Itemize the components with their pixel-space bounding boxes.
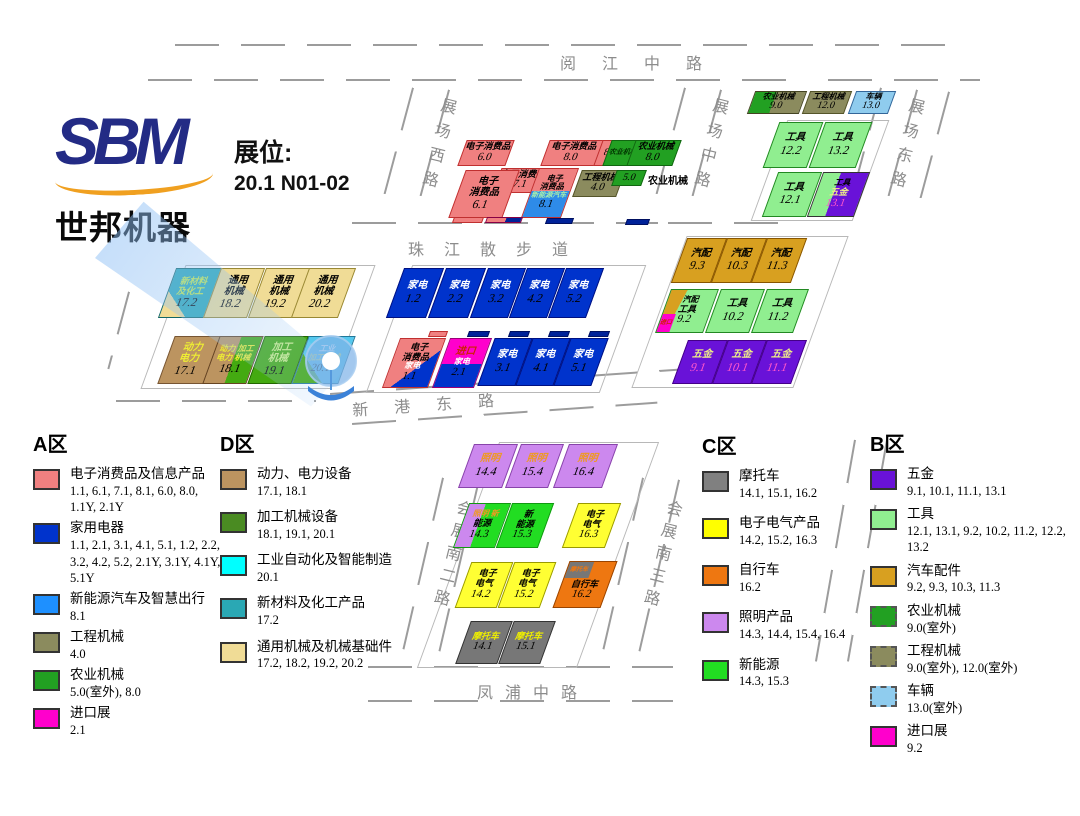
legend-item-text: 农业机械5.0(室外), 8.0 — [70, 667, 141, 700]
legend-swatch — [702, 660, 729, 681]
legend-item: 家用电器1.1, 2.1, 3.1, 4.1, 5.1, 1.2, 2.2, 3… — [33, 520, 227, 586]
legend-item-name: 工业自动化及智能制造 — [257, 552, 392, 569]
legend-item: 五金9.1, 10.1, 11.1, 13.1 — [870, 466, 1075, 499]
legend-swatch — [702, 518, 729, 539]
legend-zone-title-C: C区 — [702, 430, 870, 459]
legend-item-text: 通用机械及机械基础件17.2, 18.2, 19.2, 20.2 — [257, 639, 392, 672]
legend-item: 电子消费品及信息产品1.1, 6.1, 7.1, 8.1, 6.0, 8.0, … — [33, 466, 227, 515]
legend-item: 农业机械5.0(室外), 8.0 — [33, 667, 227, 700]
legend-item-halls: 9.0(室外) — [907, 620, 961, 636]
legend-item: 通用机械及机械基础件17.2, 18.2, 19.2, 20.2 — [220, 639, 425, 672]
legend-item-text: 汽车配件9.2, 9.3, 10.3, 11.3 — [907, 563, 1000, 596]
legend-item-name: 新材料及化工产品 — [257, 595, 365, 612]
legend-item: 电子电气产品14.2, 15.2, 16.3 — [702, 515, 870, 548]
legend-item-text: 工具12.1, 13.1, 9.2, 10.2, 11.2, 12.2, 13.… — [907, 506, 1075, 555]
legend-zone-D: D区动力、电力设备17.1, 18.1加工机械设备18.1, 19.1, 20.… — [220, 428, 425, 682]
legend-item: 工程机械4.0 — [33, 629, 227, 662]
legend-item-halls: 9.1, 10.1, 11.1, 13.1 — [907, 483, 1007, 499]
legend-swatch — [33, 670, 60, 691]
legend-swatch — [220, 642, 247, 663]
legend-item-name: 新能源 — [739, 657, 789, 674]
legend-item-name: 进口展 — [907, 723, 948, 740]
legend-swatch — [870, 726, 897, 747]
legend-item-halls: 9.0(室外), 12.0(室外) — [907, 660, 1017, 676]
legend-item-text: 新能源14.3, 15.3 — [739, 657, 789, 690]
booth-info: 展位: 20.1 N01-02 — [234, 133, 350, 196]
legend-item-text: 动力、电力设备17.1, 18.1 — [257, 466, 352, 499]
legend-item-name: 加工机械设备 — [257, 509, 338, 526]
legend-item-name: 电子电气产品 — [739, 515, 820, 532]
legend-item-halls: 4.0 — [70, 646, 124, 662]
legend-swatch — [220, 555, 247, 576]
legend-item-halls: 13.0(室外) — [907, 700, 962, 716]
legend-swatch — [220, 598, 247, 619]
legend-item-halls: 20.1 — [257, 569, 392, 585]
legend-item: 进口展9.2 — [870, 723, 1075, 756]
legend-item-halls: 17.2 — [257, 612, 365, 628]
legend-zone-title-B: B区 — [870, 428, 1075, 457]
legend-item-text: 照明产品14.3, 14.4, 15.4, 16.4 — [739, 609, 845, 642]
sbm-logo: SBM 世邦机器 — [55, 108, 235, 249]
legend-item-halls: 17.2, 18.2, 19.2, 20.2 — [257, 655, 392, 671]
legend-item-text: 进口展2.1 — [70, 705, 111, 738]
location-pin-icon — [300, 334, 362, 411]
legend-swatch — [33, 523, 60, 544]
legend-item-text: 工程机械4.0 — [70, 629, 124, 662]
legend-item: 工业自动化及智能制造20.1 — [220, 552, 425, 585]
legend-swatch — [33, 632, 60, 653]
legend-item: 进口展2.1 — [33, 705, 227, 738]
legend-item-text: 自行车16.2 — [739, 562, 780, 595]
legend-zone-title-D: D区 — [220, 428, 425, 457]
legend-item-text: 工业自动化及智能制造20.1 — [257, 552, 392, 585]
legend-item-text: 进口展9.2 — [907, 723, 948, 756]
legend-zone-B: B区五金9.1, 10.1, 11.1, 13.1工具12.1, 13.1, 9… — [870, 428, 1075, 763]
legend-item-text: 电子电气产品14.2, 15.2, 16.3 — [739, 515, 820, 548]
legend-item-text: 家用电器1.1, 2.1, 3.1, 4.1, 5.1, 1.2, 2.2, 3… — [70, 520, 227, 586]
legend-item-halls: 1.1, 2.1, 3.1, 4.1, 5.1, 1.2, 2.2, 3.2, … — [70, 537, 227, 586]
legend-item-name: 汽车配件 — [907, 563, 1000, 580]
legend-swatch — [220, 512, 247, 533]
legend-swatch — [33, 469, 60, 490]
legend-item-halls: 12.1, 13.1, 9.2, 10.2, 11.2, 12.2, 13.2 — [907, 523, 1075, 556]
legend-swatch — [33, 708, 60, 729]
legend-swatch — [870, 566, 897, 587]
legend-item-halls: 17.1, 18.1 — [257, 483, 352, 499]
legend-swatch — [702, 612, 729, 633]
legend-item-name: 通用机械及机械基础件 — [257, 639, 392, 656]
legend-item: 新能源14.3, 15.3 — [702, 657, 870, 690]
legend-item-halls: 14.3, 14.4, 15.4, 16.4 — [739, 626, 845, 642]
legend-item-text: 电子消费品及信息产品1.1, 6.1, 7.1, 8.1, 6.0, 8.0, … — [70, 466, 227, 515]
legend-item-name: 五金 — [907, 466, 1007, 483]
booth-number: 20.1 N01-02 — [234, 172, 350, 196]
legend-swatch — [870, 606, 897, 627]
legend-item-name: 工程机械 — [907, 643, 1017, 660]
legend-swatch — [870, 646, 897, 667]
exhibition-map-poster: SBM 世邦机器 展位: 20.1 N01-02 阅江中路珠江散步道新港东路凤浦… — [0, 0, 1080, 816]
legend-item-halls: 8.1 — [70, 608, 205, 624]
legend-swatch — [870, 686, 897, 707]
legend-item-text: 摩托车14.1, 15.1, 16.2 — [739, 468, 817, 501]
legend-item: 新材料及化工产品17.2 — [220, 595, 425, 628]
legend-item: 自行车16.2 — [702, 562, 870, 595]
legend-item-name: 进口展 — [70, 705, 111, 722]
legend-item-halls: 14.1, 15.1, 16.2 — [739, 485, 817, 501]
legend-item: 加工机械设备18.1, 19.1, 20.1 — [220, 509, 425, 542]
legend-zone-C: C区摩托车14.1, 15.1, 16.2电子电气产品14.2, 15.2, 1… — [702, 430, 870, 704]
legend-item-text: 车辆13.0(室外) — [907, 683, 962, 716]
legend-item-name: 工具 — [907, 506, 1075, 523]
legend-swatch — [870, 469, 897, 490]
legend-item-text: 加工机械设备18.1, 19.1, 20.1 — [257, 509, 338, 542]
legend-item-name: 动力、电力设备 — [257, 466, 352, 483]
legend-item-name: 农业机械 — [70, 667, 141, 684]
legend-item: 工程机械9.0(室外), 12.0(室外) — [870, 643, 1075, 676]
legend-item-name: 农业机械 — [907, 603, 961, 620]
legend-item: 车辆13.0(室外) — [870, 683, 1075, 716]
sbm-logo-subtitle: 世邦机器 — [55, 201, 235, 249]
legend-zone-title-A: A区 — [33, 428, 227, 457]
legend-item-halls: 1.1, 6.1, 7.1, 8.1, 6.0, 8.0, 1.1Y, 2.1Y — [70, 483, 227, 516]
legend-item-halls: 9.2, 9.3, 10.3, 11.3 — [907, 579, 1000, 595]
legend-item-text: 五金9.1, 10.1, 11.1, 13.1 — [907, 466, 1007, 499]
legend-zone-A: A区电子消费品及信息产品1.1, 6.1, 7.1, 8.1, 6.0, 8.0… — [33, 428, 227, 744]
legend-item-name: 电子消费品及信息产品 — [70, 466, 227, 483]
legend-swatch — [220, 469, 247, 490]
legend-item-name: 摩托车 — [739, 468, 817, 485]
legend-item-name: 车辆 — [907, 683, 962, 700]
legend-item-halls: 14.2, 15.2, 16.3 — [739, 532, 820, 548]
legend-item-text: 农业机械9.0(室外) — [907, 603, 961, 636]
legend-item: 摩托车14.1, 15.1, 16.2 — [702, 468, 870, 501]
legend-item-text: 新材料及化工产品17.2 — [257, 595, 365, 628]
booth-label: 展位: — [234, 133, 350, 169]
legend-item-halls: 5.0(室外), 8.0 — [70, 684, 141, 700]
legend-item-halls: 18.1, 19.1, 20.1 — [257, 526, 338, 542]
legend-item-name: 工程机械 — [70, 629, 124, 646]
legend-item-name: 自行车 — [739, 562, 780, 579]
legend-swatch — [870, 509, 897, 530]
legend-swatch — [702, 471, 729, 492]
legend-item-halls: 14.3, 15.3 — [739, 673, 789, 689]
legend-item-text: 工程机械9.0(室外), 12.0(室外) — [907, 643, 1017, 676]
legend-item-name: 家用电器 — [70, 520, 227, 537]
legend-item-halls: 2.1 — [70, 722, 111, 738]
legend-item: 农业机械9.0(室外) — [870, 603, 1075, 636]
legend-item-name: 照明产品 — [739, 609, 845, 626]
legend-item: 照明产品14.3, 14.4, 15.4, 16.4 — [702, 609, 870, 642]
legend-item: 新能源汽车及智慧出行8.1 — [33, 591, 227, 624]
legend-item-name: 新能源汽车及智慧出行 — [70, 591, 205, 608]
legend-swatch — [702, 565, 729, 586]
legend-item-halls: 9.2 — [907, 740, 948, 756]
legend-item: 汽车配件9.2, 9.3, 10.3, 11.3 — [870, 563, 1075, 596]
legend-swatch — [33, 594, 60, 615]
legend-item: 工具12.1, 13.1, 9.2, 10.2, 11.2, 12.2, 13.… — [870, 506, 1075, 555]
legend-item-halls: 16.2 — [739, 579, 780, 595]
legend-item-text: 新能源汽车及智慧出行8.1 — [70, 591, 205, 624]
legend-item: 动力、电力设备17.1, 18.1 — [220, 466, 425, 499]
